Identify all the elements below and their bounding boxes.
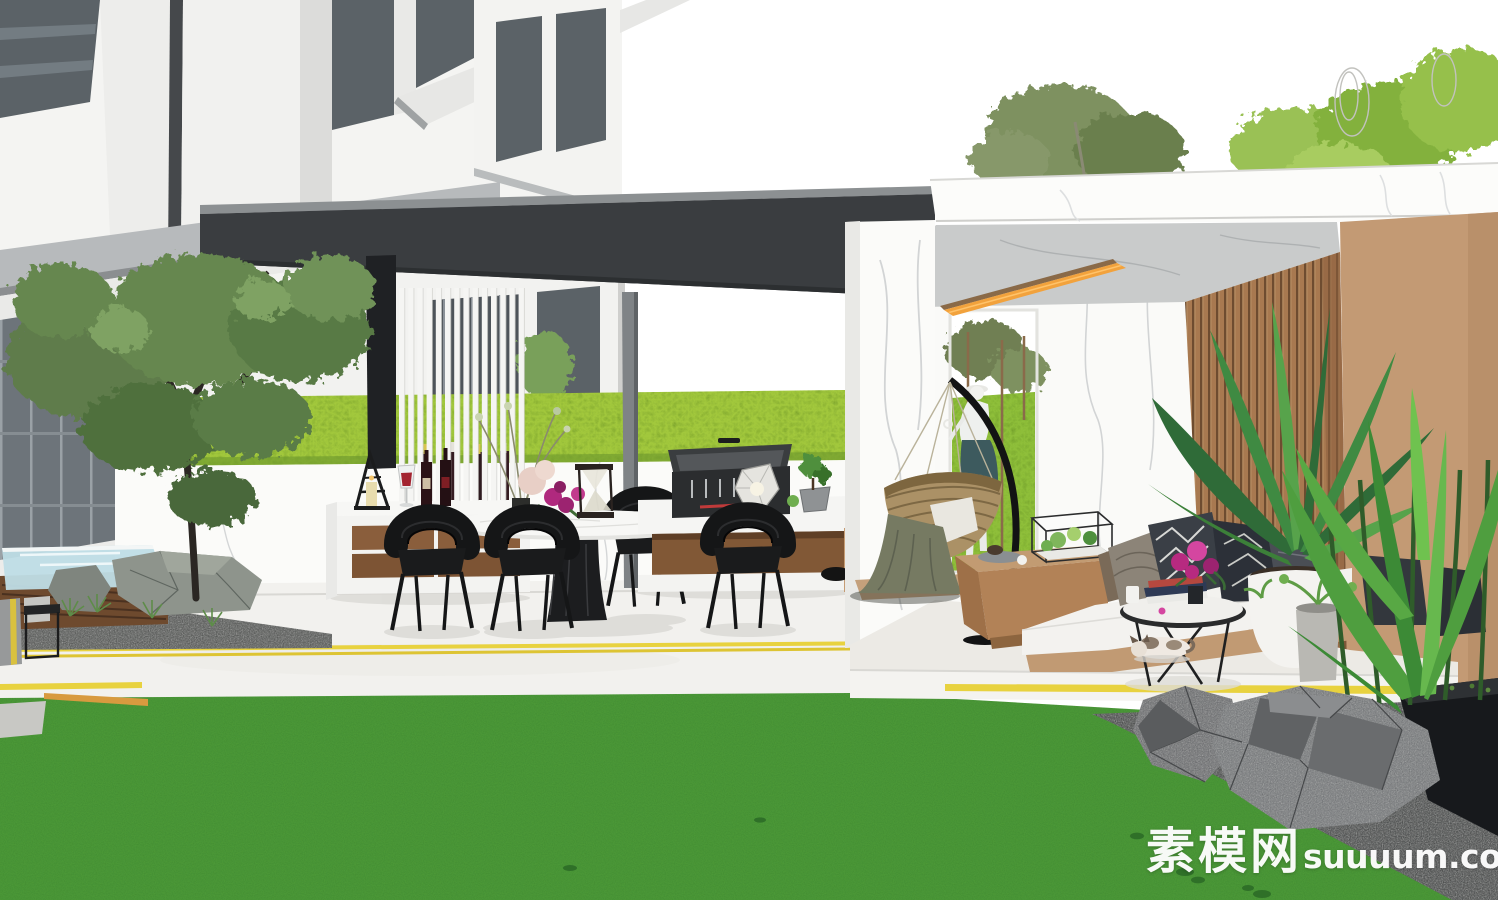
louver-wine-rack [399,288,525,502]
white-louver-screen [399,288,525,502]
mug [1126,586,1139,603]
render-canvas: 素模网suuuum.com [0,0,1498,900]
courtyard-scene [0,0,1498,900]
small-background-tree [517,331,573,399]
